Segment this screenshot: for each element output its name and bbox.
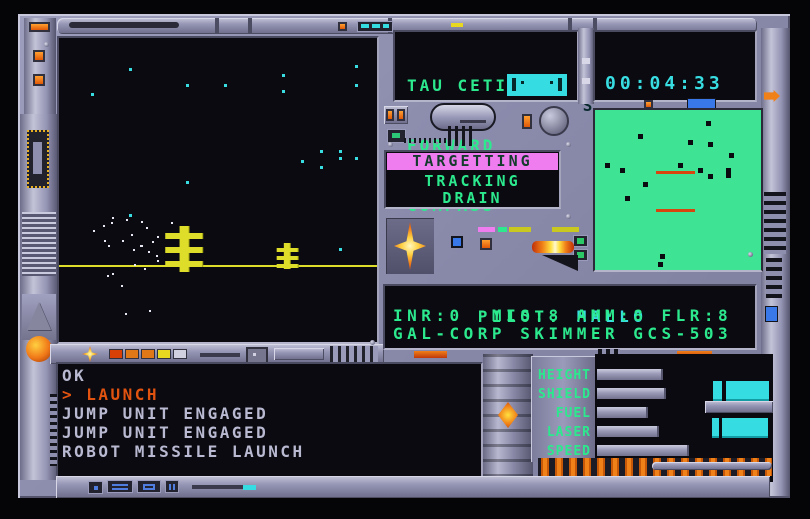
radar-contact [708, 174, 713, 179]
console-ribs [50, 394, 57, 466]
gauge-label: FUEL [556, 406, 591, 421]
gauge-bar-height [597, 369, 663, 380]
cyan-dash [243, 485, 256, 490]
structure-arm [165, 233, 203, 239]
blue-button [451, 236, 463, 248]
console-line: ROBOT MISSILE LAUNCH [62, 442, 305, 461]
drain-label: DRAIN [386, 189, 559, 207]
status-square [158, 350, 170, 358]
radar-contact [678, 163, 683, 168]
pipe-joint [215, 18, 219, 34]
craft-name: GAL-CORP SKIMMER GCS-503 [393, 324, 732, 343]
star [141, 245, 143, 247]
star [186, 181, 189, 184]
sparkle-icon [82, 346, 98, 362]
ribbed-column [483, 354, 533, 478]
mission-clock: 00:04:33 [605, 74, 755, 94]
star [133, 249, 135, 251]
cyan-light [713, 381, 722, 401]
star [107, 275, 109, 277]
dotted-strip [404, 138, 450, 143]
star [112, 217, 114, 219]
radar-contact [643, 182, 648, 187]
orange-dash [414, 351, 447, 358]
star [339, 248, 342, 251]
main-viewport[interactable] [57, 36, 379, 344]
gauge-divider [705, 401, 773, 413]
gauge-label-panel: HEIGHTSHIELDFUELLASERSPEED [531, 356, 595, 462]
strip-pink [478, 227, 495, 232]
toolbar-plate [274, 348, 324, 360]
star [104, 240, 106, 242]
star [157, 236, 159, 238]
star [224, 84, 227, 87]
strip-yellow [509, 227, 531, 232]
orange-light-pair [384, 106, 408, 124]
pilot-panel: PILOT: MALLO INR:0 MIS:8 AMM:8 FLR:8 GAL… [383, 284, 757, 350]
orange-indicator [33, 74, 45, 86]
star [112, 273, 114, 275]
orange-indicator [29, 22, 50, 32]
console-line: OK [62, 366, 305, 385]
radar-contact [605, 163, 610, 168]
status-square [126, 350, 138, 358]
rivet [748, 252, 753, 257]
machinery-upper [384, 102, 564, 150]
star [339, 157, 342, 160]
console-line: JUMP UNIT ENGAGED [62, 423, 305, 442]
command-console[interactable]: OK> LAUNCHJUMP UNIT ENGAGEDJUMP UNIT ENG… [56, 362, 483, 478]
triangle-panel [22, 294, 56, 340]
cyan-light [722, 418, 768, 438]
star [121, 285, 123, 287]
star [320, 166, 323, 169]
vent-grille [764, 192, 786, 254]
star [301, 160, 304, 163]
rivet [44, 42, 49, 47]
blue-indicator [765, 306, 778, 322]
pipe-orange-light [338, 22, 347, 31]
star [282, 90, 285, 93]
console-log: OK> LAUNCHJUMP UNIT ENGAGEDJUMP UNIT ENG… [62, 366, 305, 461]
star [355, 84, 358, 87]
radar-contact [698, 168, 703, 173]
star [93, 230, 95, 232]
info-divider [578, 28, 594, 104]
rivet [566, 214, 571, 219]
vent-grille [766, 258, 782, 298]
structure-arm [277, 264, 298, 268]
structure-arm [277, 248, 298, 252]
star [282, 74, 285, 77]
pipe-cyan-display [357, 21, 393, 32]
console-line: > LAUNCH [62, 385, 305, 404]
rotary-knob[interactable] [539, 106, 569, 136]
star [186, 84, 189, 87]
star [146, 227, 148, 229]
tau-ceti-cockpit: OK> LAUNCHJUMP UNIT ENGAGEDJUMP UNIT ENG… [0, 0, 810, 519]
vent-slats [448, 126, 476, 146]
orange-arrow-icon [764, 90, 780, 102]
slot-indicator [27, 130, 49, 188]
radar-contact [688, 140, 693, 145]
radar-contact [706, 121, 711, 126]
bottom-slot [192, 485, 248, 489]
blue-symbol [107, 480, 133, 493]
radar-contact [660, 254, 665, 259]
star [131, 234, 133, 236]
star [125, 313, 127, 315]
console-line: JUMP UNIT ENGAGED [62, 404, 305, 423]
star [320, 150, 323, 153]
gauge-bar-shield [597, 388, 666, 399]
rivet [566, 142, 571, 147]
status-panel-left: TAU CETI III FORWARD COMPASS S [393, 30, 579, 102]
gauge-label: HEIGHT [538, 368, 591, 383]
star [156, 255, 158, 257]
star [148, 251, 150, 253]
rivet [370, 340, 375, 345]
star [144, 268, 146, 270]
radar-contact [620, 168, 625, 173]
gauge-bar-fuel [597, 407, 648, 418]
cyan-light [712, 418, 719, 438]
radar-contact [658, 262, 663, 267]
rivet [388, 142, 393, 147]
bellows-pipe [22, 212, 56, 276]
radar-contact [729, 153, 734, 158]
orange-button [480, 238, 492, 250]
star [103, 225, 105, 227]
top-left-column [24, 18, 56, 114]
radar-scan-line [656, 209, 694, 212]
machinery-lower [384, 214, 564, 282]
star [126, 219, 128, 221]
radar-scan-line [656, 171, 694, 174]
star [149, 310, 151, 312]
structure-arm [165, 247, 203, 253]
radar-contact [638, 134, 643, 139]
orange-indicator [522, 114, 532, 129]
gauge-label: LASER [547, 425, 591, 440]
horizon-line [59, 265, 377, 267]
strip-yellow [552, 227, 579, 232]
orange-sphere [26, 336, 52, 362]
star [355, 157, 358, 160]
pipe-joint [248, 18, 252, 34]
bottom-bar [56, 476, 770, 498]
radar-map [593, 108, 763, 272]
star [339, 150, 342, 153]
gauge-bar-laser [597, 426, 659, 437]
blue-symbol [137, 480, 161, 493]
cyan-light [726, 381, 769, 401]
star [171, 222, 173, 224]
target-panel: TARGETTING TRACKING DRAIN [384, 150, 561, 209]
gauge-label: SPEED [547, 444, 591, 459]
star [152, 241, 154, 243]
star [91, 93, 94, 96]
radar-contact [625, 196, 630, 201]
radar-contact [708, 142, 713, 147]
radar-contact [726, 168, 731, 178]
status-panel-right: 00:04:33 NOVIA LAUNCHED [593, 30, 757, 102]
status-square [142, 350, 154, 358]
star [141, 221, 143, 223]
heat-glowbar [532, 241, 574, 253]
strip-green [498, 227, 507, 232]
star [129, 214, 132, 217]
star [355, 65, 358, 68]
star [108, 245, 110, 247]
pipe-yellow-light [451, 23, 463, 27]
target-mode-badge: TARGETTING [387, 153, 558, 170]
star [157, 260, 159, 262]
toolbar-ribs [330, 346, 378, 362]
gauge-bar-speed [597, 445, 689, 456]
star [122, 240, 124, 242]
green-cell [573, 235, 588, 247]
status-square [110, 350, 122, 358]
status-square [174, 350, 186, 358]
tracking-label: TRACKING [386, 172, 559, 190]
blue-symbol [165, 480, 179, 493]
toolbar-slot [200, 353, 240, 357]
grill-rail [652, 462, 772, 470]
star [129, 68, 132, 71]
gauge-label: SHIELD [538, 387, 591, 402]
viewport-toolbar [50, 344, 384, 364]
pipe-slot [69, 22, 179, 28]
structure-arm [277, 256, 298, 260]
compass-tape: S [507, 74, 567, 96]
pilot-stats: INR:0 MIS:8 AMM:8 FLR:8 [393, 306, 732, 325]
orange-indicator [33, 50, 45, 62]
star [134, 264, 136, 266]
star [111, 222, 113, 224]
structure-arm [165, 261, 203, 267]
